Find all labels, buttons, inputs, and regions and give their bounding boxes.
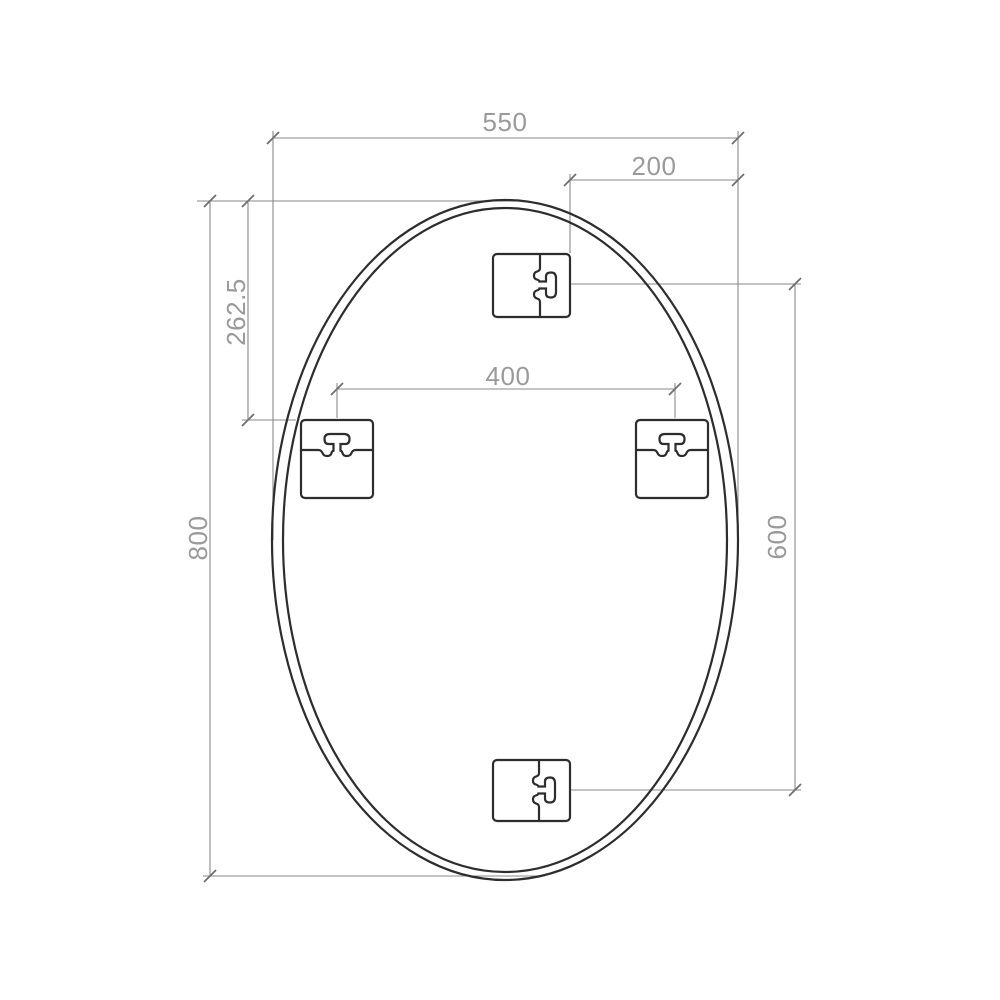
dimension-label-overall-height: 800 [184, 478, 212, 598]
mounting-brackets [301, 254, 708, 821]
mounting-bracket-top [493, 254, 570, 317]
mounting-bracket-right [636, 420, 708, 498]
technical-drawing-canvas: 550 200 262.5 400 800 600 [0, 0, 1000, 1000]
dimension-label-side-bracket-spacing: 400 [448, 362, 568, 390]
dimension-label-bracket-drop: 262.5 [222, 252, 250, 372]
mounting-bracket-bottom [493, 760, 570, 821]
bracket-body [636, 420, 708, 498]
mounting-bracket-left [301, 420, 373, 498]
bracket-body [493, 760, 570, 821]
dimension-label-vertical-bracket-spacing: 600 [763, 477, 791, 597]
bracket-body [301, 420, 373, 498]
dimension-label-top-bracket-offset: 200 [594, 152, 714, 180]
dimension-label-overall-width: 550 [445, 108, 565, 136]
mirror-drawing [0, 0, 1000, 1000]
bracket-body [493, 254, 570, 317]
